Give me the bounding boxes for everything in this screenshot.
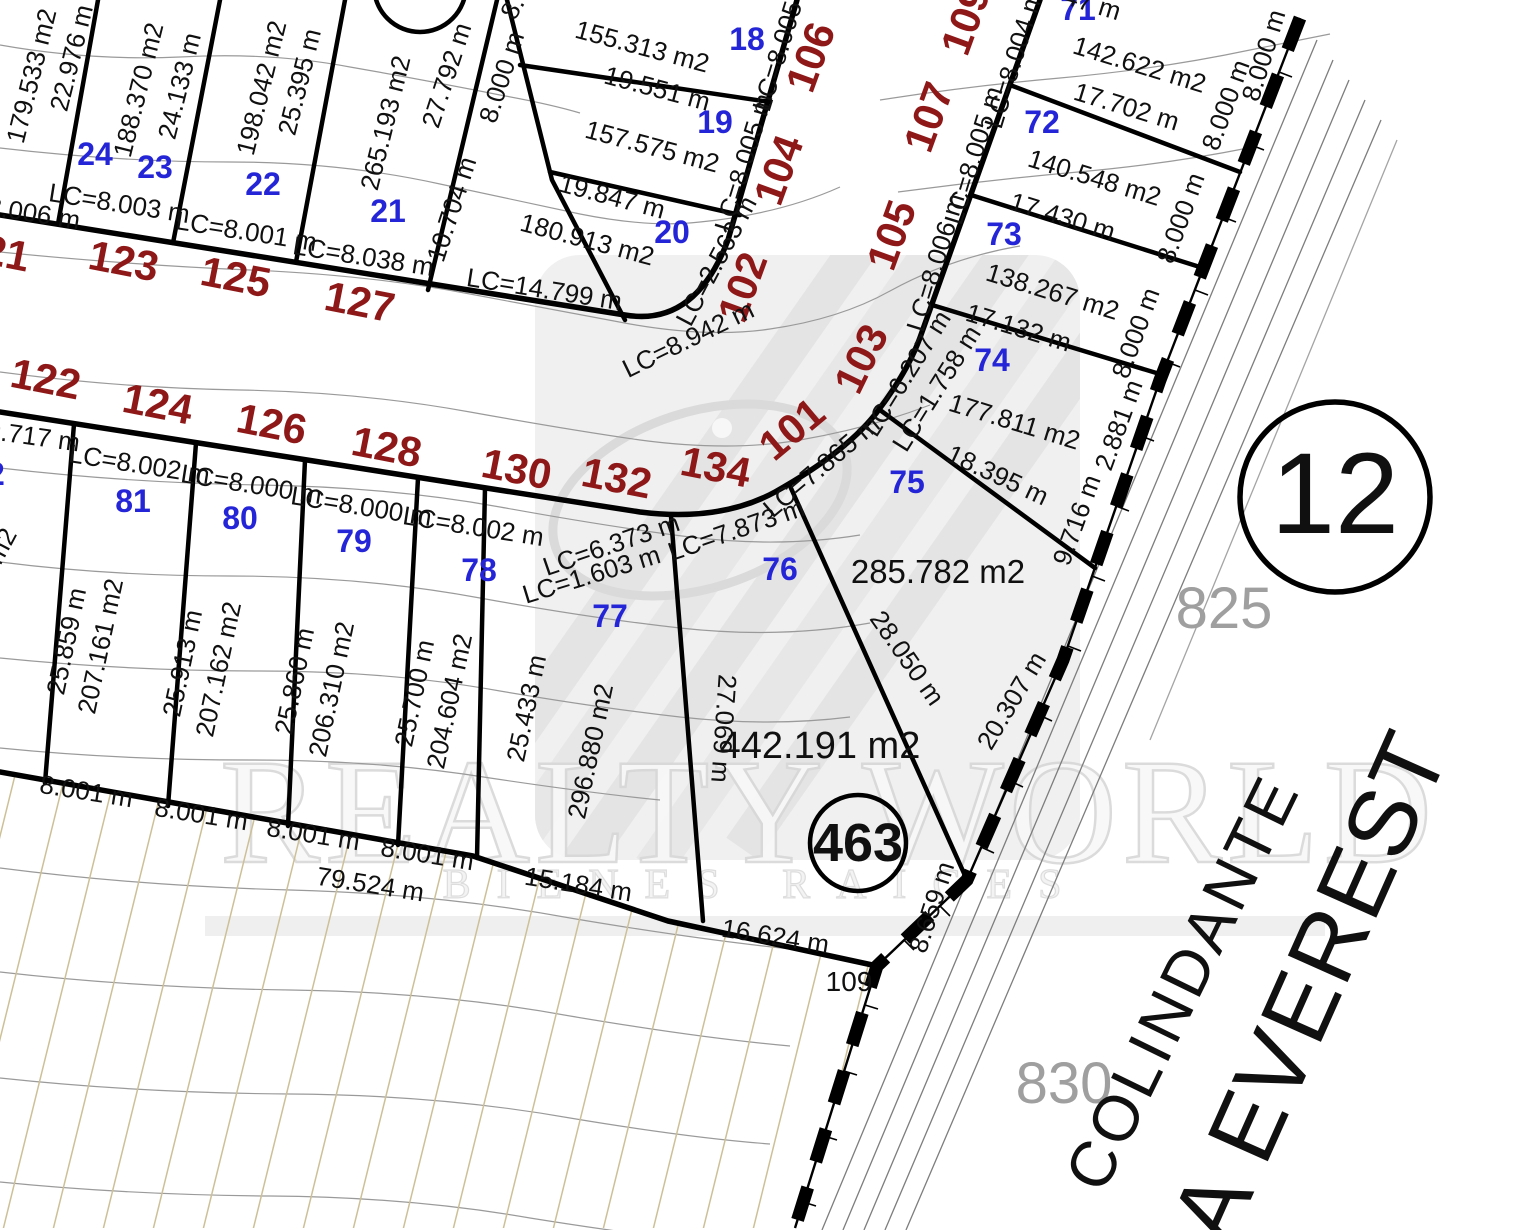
boundary-vertex-109: 109 [826,966,873,997]
lot-23-area: 188.370 m2 [107,20,169,161]
lot-77-number: 77 [592,598,628,634]
lot-76-area: 442.191 m2 [720,725,921,767]
lot-23-number: 23 [137,149,173,185]
street-number-121: 121 [0,221,34,281]
lot-81-number: 81 [115,483,151,519]
lot-75-number: 75 [889,464,925,500]
lot-82-number: 82 [0,456,5,492]
lot-21-back: 8.000 m [473,28,531,127]
lot-24-number: 24 [77,136,113,172]
gray-ref-825: 825 [1176,576,1273,641]
street-number-107: 107 [894,76,962,158]
lot-22-number: 22 [245,166,281,202]
block-circle-12-label: 12 [1271,430,1399,558]
street-number-124: 124 [119,374,197,434]
plat-map-canvas: REALTY WORLD BIENES RAICES [0,0,1538,1230]
lot-18-back-fragment: 8. [494,0,531,24]
lot-21-number: 21 [370,193,406,229]
lot-75-area: 285.782 m2 [851,553,1025,590]
lot-81-bottom: 8.001 m [38,769,135,813]
parcel-circle-463-label: 463 [813,813,903,873]
lot-82-area-fragment: m2 [0,523,23,569]
lot-80-number: 80 [222,500,258,536]
street-number-122: 122 [7,349,85,409]
lot-76-number: 76 [762,551,798,587]
lot-79-number: 79 [336,523,372,559]
lot-73-number: 73 [986,216,1022,252]
street-number-126: 126 [233,394,311,454]
street-number-109: 109 [931,0,999,61]
lot-74-back-fragment: 8.000 m [1235,6,1291,105]
plat-map: REALTY WORLD BIENES RAICES [0,0,1538,1230]
lot-78-number: 78 [461,552,497,588]
lot-21-east: 10.704 m [420,153,482,265]
lot-21-area: 265.193 m2 [354,53,416,194]
lot-72-number: 72 [1024,104,1060,140]
lot-74-number: 74 [974,342,1010,378]
lot-18-number: 18 [729,21,765,57]
